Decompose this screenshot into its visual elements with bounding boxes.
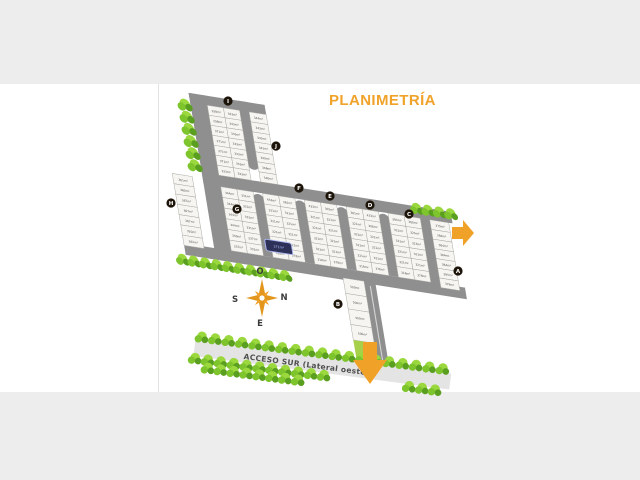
block-marker-label: J xyxy=(274,144,277,150)
block-marker-D: D xyxy=(365,200,374,209)
block-marker-label: H xyxy=(169,201,174,207)
compass-label-left: S xyxy=(232,295,238,305)
block-H: 361m²380m²367m²367m²367m²320m²362m² xyxy=(172,173,204,248)
block-marker-label: D xyxy=(368,203,373,209)
block-marker-label: G xyxy=(235,207,240,213)
right-arrow-icon xyxy=(452,220,474,246)
block-marker-label: A xyxy=(456,269,461,275)
page-title: PLANIMETRÍA xyxy=(329,92,436,109)
block-marker-label: B xyxy=(336,302,340,308)
block-marker-E: E xyxy=(325,191,334,200)
block-marker-label: F xyxy=(297,186,301,192)
compass-label-bottom: E xyxy=(257,319,263,329)
site-plan-svg: 298m²343m²298m²343m²371m²333m²371m²333m²… xyxy=(0,0,640,480)
block-marker-C: C xyxy=(404,209,413,218)
block-marker-F: F xyxy=(294,183,303,192)
block-marker-A: A xyxy=(453,266,462,275)
block-marker-label: C xyxy=(407,212,411,218)
block-marker-label: I xyxy=(227,99,229,105)
block-marker-I: I xyxy=(223,96,232,105)
access-road: ACCESO SUR (Lateral oeste) xyxy=(186,330,452,405)
block-marker-label: E xyxy=(328,194,332,200)
block-marker-G: G xyxy=(232,204,241,213)
block-marker-B: B xyxy=(333,299,342,308)
compass-label-top: O xyxy=(256,267,263,277)
block-marker-H: H xyxy=(166,198,175,207)
block-marker-J: J xyxy=(271,141,280,150)
canvas: 298m²343m²298m²343m²371m²333m²371m²333m²… xyxy=(0,0,640,480)
compass-label-right: N xyxy=(280,293,287,303)
